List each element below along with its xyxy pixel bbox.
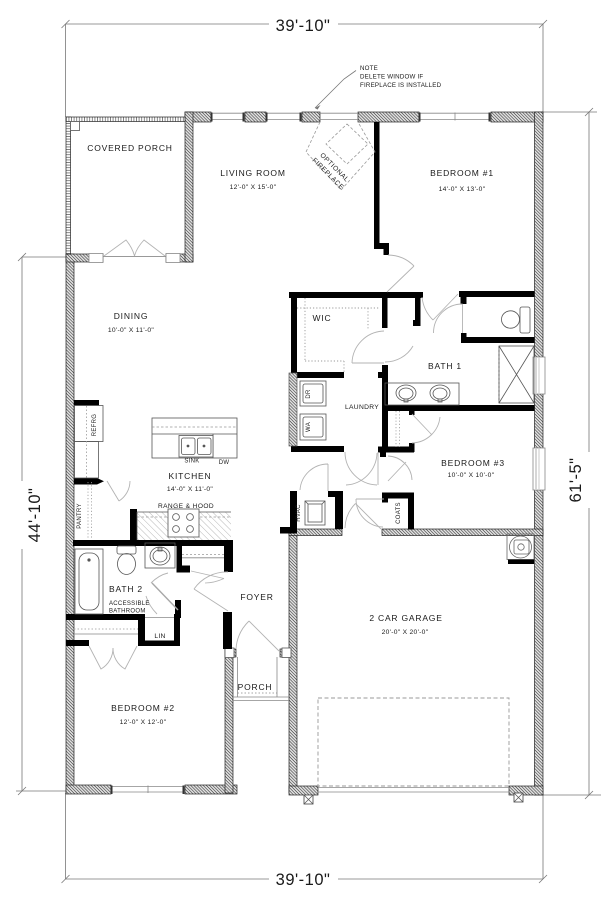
svg-text:DW: DW xyxy=(219,460,230,466)
svg-text:DINING: DINING xyxy=(114,311,149,321)
svg-text:BEDROOM #3: BEDROOM #3 xyxy=(441,458,505,468)
svg-text:2 CAR GARAGE: 2 CAR GARAGE xyxy=(369,613,442,623)
svg-text:SINK: SINK xyxy=(184,459,199,465)
svg-text:14'-0" X 13'-0": 14'-0" X 13'-0" xyxy=(439,186,486,193)
svg-text:39'-10": 39'-10" xyxy=(276,871,331,889)
svg-text:WA: WA xyxy=(306,422,312,432)
svg-text:61'-5": 61'-5" xyxy=(567,457,585,502)
svg-text:FOYER: FOYER xyxy=(240,592,273,602)
svg-text:PANTRY: PANTRY xyxy=(77,503,83,529)
svg-text:12'-0" X 12'-0": 12'-0" X 12'-0" xyxy=(120,719,167,726)
svg-text:LIN: LIN xyxy=(154,633,165,640)
svg-text:20'-0" X 20'-0": 20'-0" X 20'-0" xyxy=(382,629,429,636)
svg-text:DR: DR xyxy=(306,389,312,399)
svg-text:14'-0" X 11'-0": 14'-0" X 11'-0" xyxy=(167,486,214,493)
svg-text:44'-10": 44'-10" xyxy=(26,488,44,543)
svg-text:COVERED PORCH: COVERED PORCH xyxy=(87,143,173,153)
svg-text:BATH 2: BATH 2 xyxy=(109,584,143,594)
svg-text:COATS: COATS xyxy=(396,502,402,524)
svg-text:BEDROOM #1: BEDROOM #1 xyxy=(430,168,494,178)
svg-text:FIREPLACE IS INSTALLED: FIREPLACE IS INSTALLED xyxy=(360,82,442,89)
svg-text:DELETE WINDOW IF: DELETE WINDOW IF xyxy=(360,74,423,81)
svg-text:LAUNDRY: LAUNDRY xyxy=(345,404,379,411)
svg-text:10'-0" X 10'-0": 10'-0" X 10'-0" xyxy=(448,472,495,479)
svg-text:LIVING ROOM: LIVING ROOM xyxy=(220,168,285,178)
svg-text:10'-0" X 11'-0": 10'-0" X 11'-0" xyxy=(108,327,155,334)
svg-text:HVAC: HVAC xyxy=(296,504,302,522)
svg-text:REFRG: REFRG xyxy=(92,414,98,437)
svg-text:39'-10": 39'-10" xyxy=(276,17,331,35)
svg-text:12'-0" X 15'-0": 12'-0" X 15'-0" xyxy=(230,184,277,191)
svg-text:NOTE: NOTE xyxy=(360,65,378,72)
svg-text:PORCH: PORCH xyxy=(238,682,273,692)
svg-text:WIC: WIC xyxy=(313,313,332,323)
svg-text:BATHROOM: BATHROOM xyxy=(109,609,146,615)
svg-text:KITCHEN: KITCHEN xyxy=(169,471,212,481)
svg-text:BEDROOM #2: BEDROOM #2 xyxy=(111,703,175,713)
svg-text:BATH 1: BATH 1 xyxy=(428,361,462,371)
svg-text:RANGE & HOOD: RANGE & HOOD xyxy=(158,503,214,510)
svg-text:ACCESSIBLE: ACCESSIBLE xyxy=(109,601,150,607)
